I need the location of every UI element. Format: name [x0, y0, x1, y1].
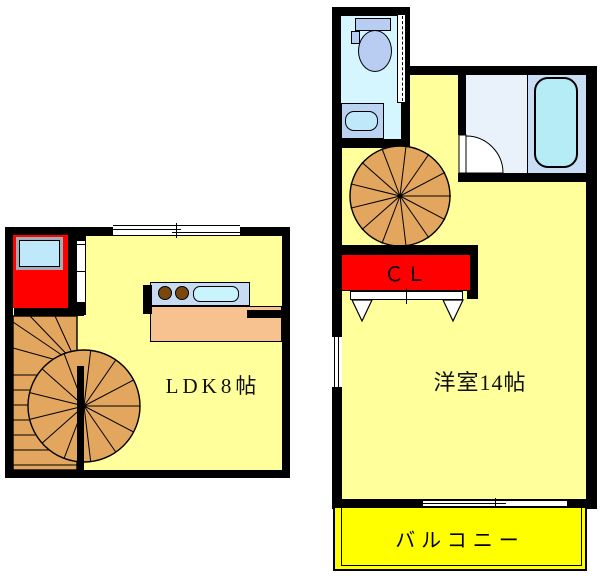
western-room-side-window-icon	[331, 337, 342, 387]
bathroom-west-wall	[458, 75, 466, 135]
second-floor-east-wall	[586, 66, 597, 509]
toilet-sink-basin-icon	[345, 111, 378, 131]
western-room-label: 洋室14帖	[410, 367, 550, 395]
toilet-door-icon	[397, 14, 406, 103]
stove-burner-icon	[175, 286, 189, 300]
toilet-paper-holder-icon	[351, 31, 360, 44]
floorplan-canvas: LDK8帖	[0, 0, 600, 578]
balcony-label: バルコニー	[395, 524, 525, 553]
entrance-sliding-door-icon	[76, 240, 86, 303]
balcony: バルコニー	[333, 506, 587, 571]
spiral-staircase-second-floor	[349, 145, 451, 247]
bathroom-door-icon	[458, 134, 505, 175]
spiral-staircase-first-floor	[5, 308, 145, 472]
toilet-bowl-icon	[358, 30, 392, 72]
kitchen-wall-stub	[247, 310, 290, 318]
second-floor-top-wall	[401, 66, 597, 75]
closet-label: ＣＬ	[384, 258, 428, 287]
entrance-door-icon	[16, 237, 63, 270]
kitchen-unit-handle	[143, 285, 152, 314]
closet-box: ＣＬ	[341, 254, 471, 291]
ldk-window-icon	[113, 225, 240, 236]
bathtub-icon	[534, 77, 578, 168]
kitchen-sink-icon	[193, 286, 239, 302]
ldk-room-label: LDK8帖	[148, 372, 278, 398]
stove-burner-icon	[158, 286, 172, 300]
closet-hanger-icons	[349, 299, 465, 324]
closet-top-wall	[332, 245, 478, 254]
